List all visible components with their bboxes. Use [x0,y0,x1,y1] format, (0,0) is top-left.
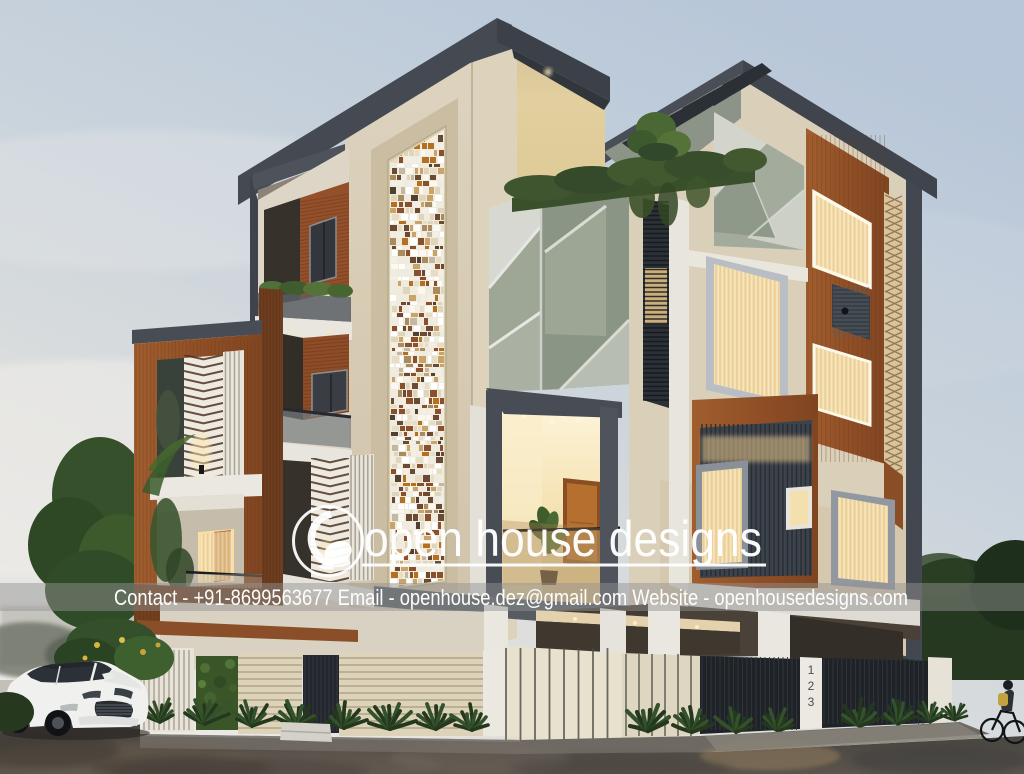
svg-text:2: 2 [808,679,815,693]
svg-text:Contact - +91-8699563677 Em: Contact - +91-8699563677 Email - openhou… [114,585,908,610]
svg-text:1: 1 [808,663,815,677]
svg-text:open house designs: open house designs [364,511,762,567]
svg-text:3: 3 [808,695,815,709]
